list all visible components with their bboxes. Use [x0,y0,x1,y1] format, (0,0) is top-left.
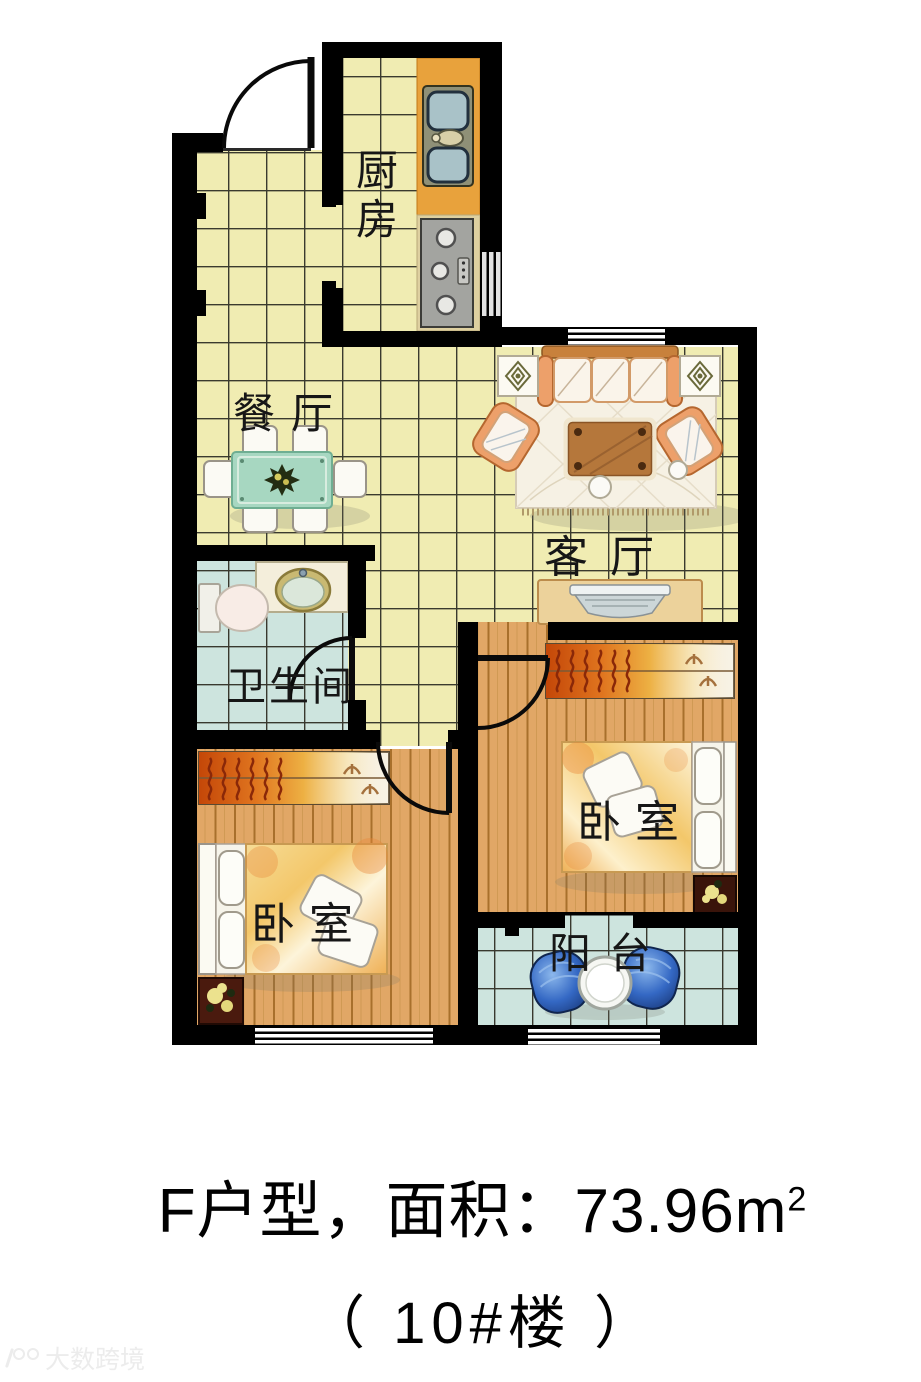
room-label-balcony: 阳台 [549,920,669,981]
tv-cabinet [538,580,702,624]
wardrobe-left [199,752,389,804]
nightstand-right [694,876,736,914]
ottoman [589,476,611,498]
room-label-bedroom-left: 卧室 [251,888,367,952]
room-label-dining: 餐厅 [233,380,349,441]
nightstand-left [199,978,243,1024]
room-label-living: 客厅 [544,521,676,585]
living-window [568,329,665,345]
caption-area-line: F户型，面积：73.96m2 [22,1160,921,1250]
room-label-kitchen: 厨房 [352,146,402,244]
kitchen-stove [421,219,473,327]
sofa [538,346,682,406]
watermark-logo-icon [8,1348,39,1368]
vanity-sink [256,562,348,612]
kitchen-window [482,252,501,316]
watermark: 大数跨境 [8,1340,145,1376]
kitchen-counter [417,58,480,331]
watermark-text: 大数跨境 [45,1340,145,1376]
kitchen-sink [423,86,473,186]
wardrobe-right [546,644,734,698]
toilet [199,584,268,632]
bedroom-left-window [255,1028,433,1044]
kitchen-doorway-floor [322,205,343,288]
entry-door [224,57,311,148]
ottoman-small [669,461,687,479]
room-label-bathroom: 卫生间 [226,654,355,712]
coffee-table [566,420,654,478]
floorplan-image: 厨房 餐厅 客厅 卫生间 卧室 卧室 阳台 F户型，面积：73.96m2 （ 1… [0,0,921,1382]
room-label-bedroom-right: 卧室 [577,786,693,850]
caption: F户型，面积：73.96m2 （ 10#楼 ） [22,1160,921,1360]
caption-building-line: （ 10#楼 ） [22,1276,921,1360]
caption-area-sup: 2 [787,1180,807,1218]
caption-area-text: F户型，面积：73.96m [158,1177,788,1246]
balcony-window [528,1029,660,1045]
hallway-floor [366,561,458,746]
